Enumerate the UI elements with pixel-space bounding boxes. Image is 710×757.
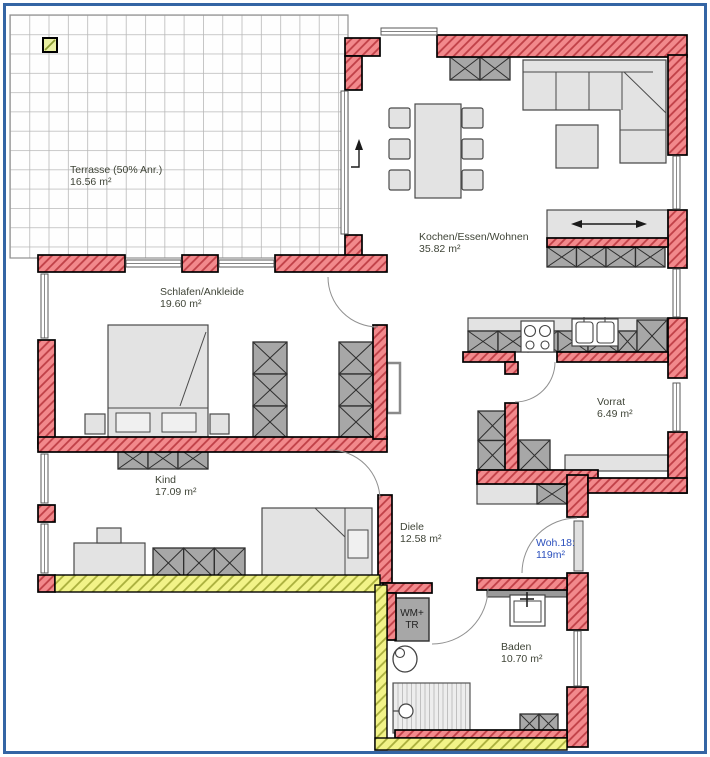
room-area: 6.49 m² (597, 408, 633, 420)
wall-segment (567, 687, 588, 747)
room-label: Kochen/Essen/Wohnen (419, 231, 529, 243)
single-bed (262, 508, 372, 578)
washbasin-icon (510, 592, 545, 626)
window (41, 454, 48, 503)
wall-segment (477, 578, 567, 590)
unit-area: 119m² (536, 549, 565, 561)
desk-chair (97, 528, 121, 543)
storage-shelf (565, 455, 668, 471)
room-label: Kind (155, 474, 176, 486)
washer-dryer-label: TR (405, 620, 418, 631)
wall-segment (588, 478, 687, 493)
floorplan-page: Terrasse (50% Anr.) 16.56 m² Kochen/Esse… (0, 0, 710, 757)
wall-segment (387, 593, 396, 640)
window (574, 631, 581, 686)
nightstand (210, 414, 229, 434)
terrace-marker-icon (43, 38, 57, 52)
double-bed (85, 325, 229, 437)
wall-segment (567, 475, 588, 517)
insulation-segment (375, 738, 567, 750)
room-label: Vorrat (597, 396, 625, 408)
room-label: Diele (400, 521, 424, 533)
chair (462, 139, 483, 159)
kitchen-tall-cabinet (637, 320, 667, 352)
window (126, 260, 181, 267)
wall-segment (437, 35, 687, 57)
room-label: Baden (501, 641, 532, 653)
sideboard-cabinet (153, 548, 245, 578)
wardrobe (339, 342, 373, 438)
pillow (116, 413, 150, 432)
window (381, 28, 437, 35)
room-label: Terrasse (50% Anr.) (70, 164, 162, 176)
window (673, 383, 680, 431)
chair (462, 170, 483, 190)
shower-icon (393, 683, 470, 733)
entrance-door-leaf (574, 521, 583, 571)
pillow (162, 413, 196, 432)
door-swing-icon (432, 588, 488, 644)
window (673, 269, 680, 317)
insulation-strips (55, 575, 567, 750)
room-area: 17.09 m² (155, 486, 197, 498)
chair (389, 139, 410, 159)
wall-segment (345, 56, 362, 90)
kitchen-peninsula (547, 210, 668, 238)
wardrobe (253, 342, 287, 438)
nightstand (85, 414, 105, 434)
window (673, 156, 680, 209)
terrace-tiles (10, 15, 348, 258)
wall-segment (373, 325, 387, 439)
room-area: 12.58 m² (400, 533, 442, 545)
coffee-table (556, 125, 598, 168)
wall-segment (395, 730, 567, 738)
wall-segment (557, 352, 668, 362)
pillow (348, 530, 368, 558)
door-swing-icon (330, 450, 380, 500)
room-area: 10.70 m² (501, 653, 543, 665)
room-area: 16.56 m² (70, 176, 112, 188)
chair (462, 108, 483, 128)
dining-table (415, 104, 461, 198)
wall-segment (567, 573, 588, 630)
window (41, 524, 48, 573)
terrace-area (10, 15, 348, 258)
floorplan-canvas: Terrasse (50% Anr.) 16.56 m² Kochen/Esse… (0, 0, 710, 757)
door-swing-icon (515, 362, 555, 402)
wall-segment (38, 340, 55, 448)
wall-segment (378, 495, 392, 583)
wall-segment (463, 352, 515, 362)
desk-group (74, 528, 145, 577)
hall-cabinet (537, 484, 567, 504)
wall-segment (505, 403, 518, 473)
unit-label: Woh.18: (536, 537, 575, 549)
wall-segment (275, 255, 387, 272)
sofa-group (523, 60, 666, 168)
storage-cabinet (519, 440, 550, 471)
door-direction-arrow (351, 139, 363, 167)
cooktop-icon (521, 321, 554, 352)
wall-segment (345, 38, 380, 56)
wall-segment (38, 255, 125, 272)
washer-dryer-label: WM+ (400, 608, 424, 619)
chair (389, 108, 410, 128)
sink-icon (572, 317, 618, 346)
kitchen-cabinet-row (547, 247, 665, 267)
toilet-icon (393, 646, 417, 672)
wall-segment (383, 583, 432, 593)
door-swing-icon (328, 277, 378, 327)
hall-sideboard (477, 484, 539, 504)
wall-segment (38, 575, 55, 592)
dining-set (389, 104, 483, 198)
kitchen-base-cabinet (618, 331, 637, 352)
desk (74, 543, 145, 577)
sideboard-cabinet (450, 57, 510, 80)
terrace-door-glazing (341, 91, 348, 234)
insulation-segment (55, 575, 380, 592)
wall-segment (505, 362, 518, 374)
wall-segment (668, 210, 687, 268)
wall-segment (668, 55, 687, 155)
room-area: 19.60 m² (160, 298, 202, 310)
chair (389, 170, 410, 190)
wall-segment (668, 318, 687, 378)
insulation-segment (375, 585, 387, 750)
radiator (387, 363, 400, 413)
wall-segment (38, 505, 55, 522)
room-area: 35.82 m² (419, 243, 461, 255)
window (219, 260, 274, 267)
storage-cabinet (478, 411, 507, 470)
wall-segment (547, 238, 668, 247)
wall-segment (182, 255, 218, 272)
room-label: Schlafen/Ankleide (160, 286, 244, 298)
window (41, 274, 48, 338)
